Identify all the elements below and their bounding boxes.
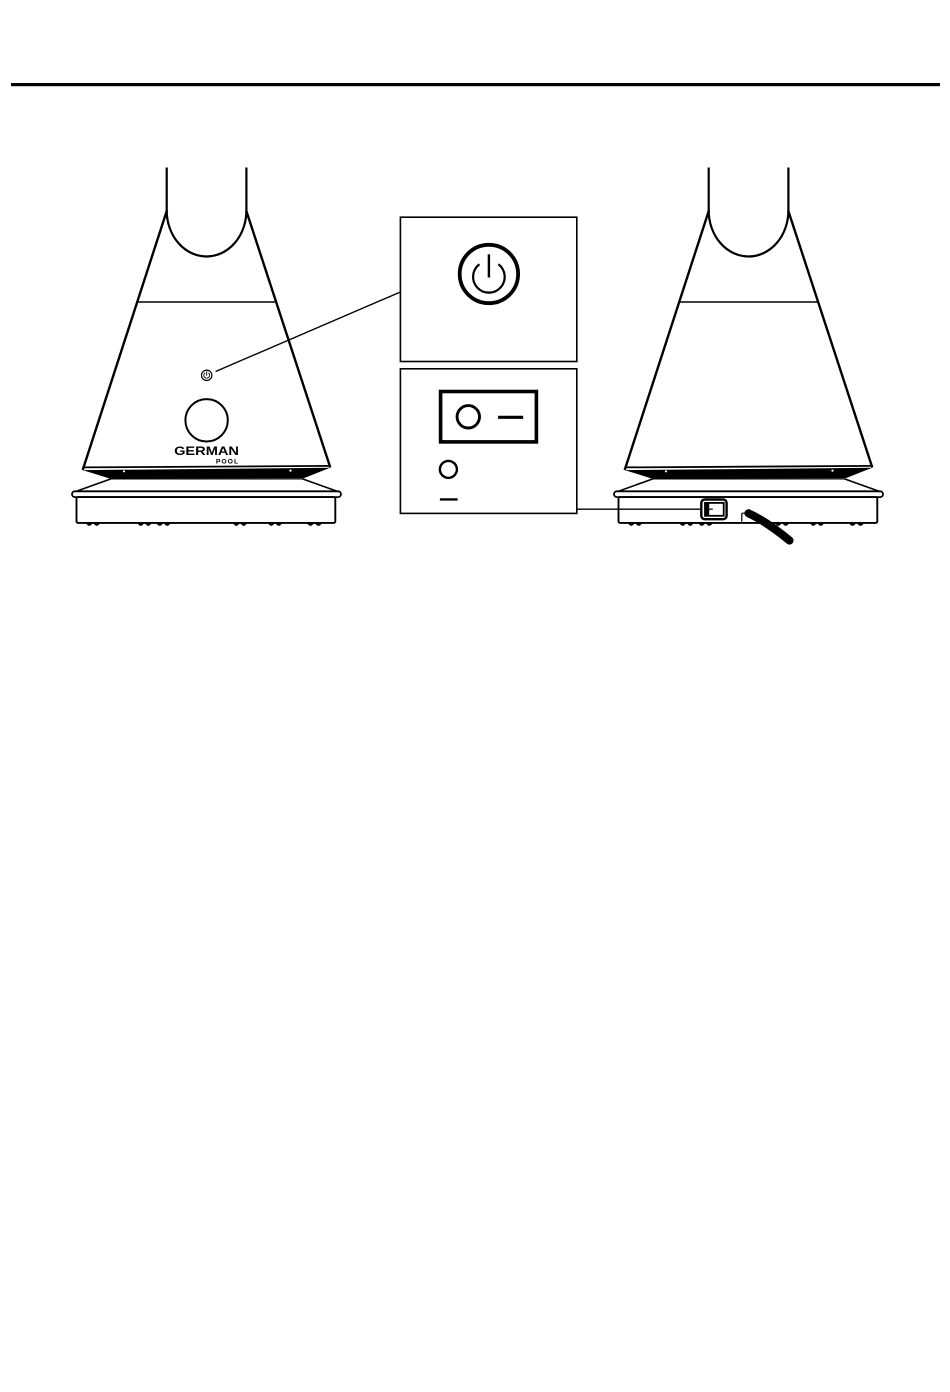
- svg-text:GERMAN: GERMAN: [174, 444, 239, 457]
- svg-text:POOL: POOL: [216, 459, 239, 466]
